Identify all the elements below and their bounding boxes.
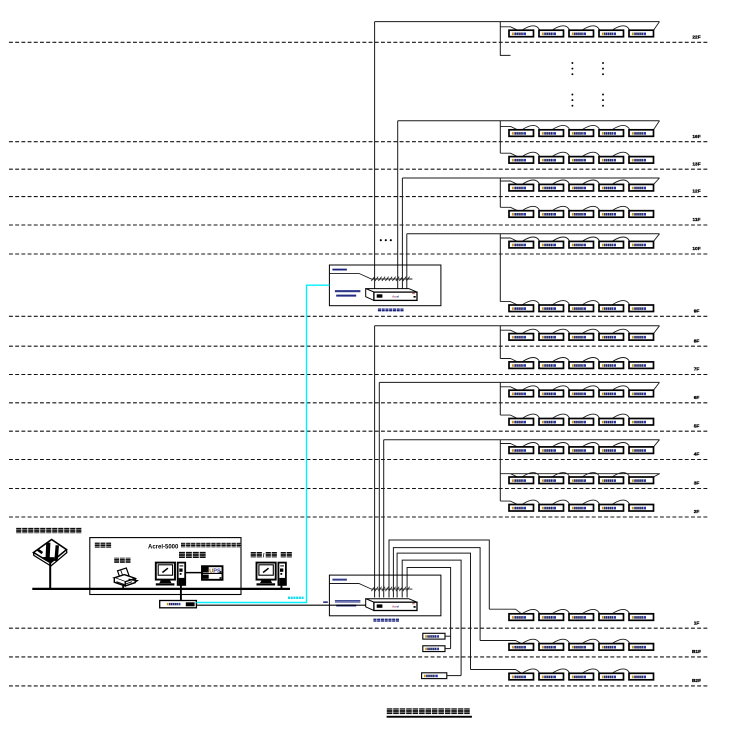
svg-text:7F: 7F <box>694 367 700 373</box>
svg-text:13F: 13F <box>692 161 700 167</box>
svg-text:4F: 4F <box>694 452 700 458</box>
svg-text:Acrel: Acrel <box>392 295 399 299</box>
svg-text:22F: 22F <box>692 34 700 40</box>
svg-text:9F: 9F <box>694 308 700 314</box>
svg-text:16F: 16F <box>692 134 700 140</box>
svg-text:Acrel-5000: Acrel-5000 <box>148 544 179 550</box>
svg-text:UPS: UPS <box>209 569 221 575</box>
svg-text:12F: 12F <box>692 189 700 195</box>
svg-text:1F: 1F <box>694 620 700 626</box>
svg-text:5F: 5F <box>694 423 700 429</box>
svg-text:2F: 2F <box>694 509 700 515</box>
svg-text:8F: 8F <box>694 338 700 344</box>
svg-text:Acrel: Acrel <box>392 605 399 609</box>
svg-text:10F: 10F <box>692 246 700 252</box>
svg-text:6F: 6F <box>694 395 700 401</box>
svg-text:11F: 11F <box>692 217 700 223</box>
svg-text:3F: 3F <box>694 481 700 487</box>
svg-text:B2F: B2F <box>692 678 701 684</box>
svg-text:B1F: B1F <box>692 649 701 655</box>
